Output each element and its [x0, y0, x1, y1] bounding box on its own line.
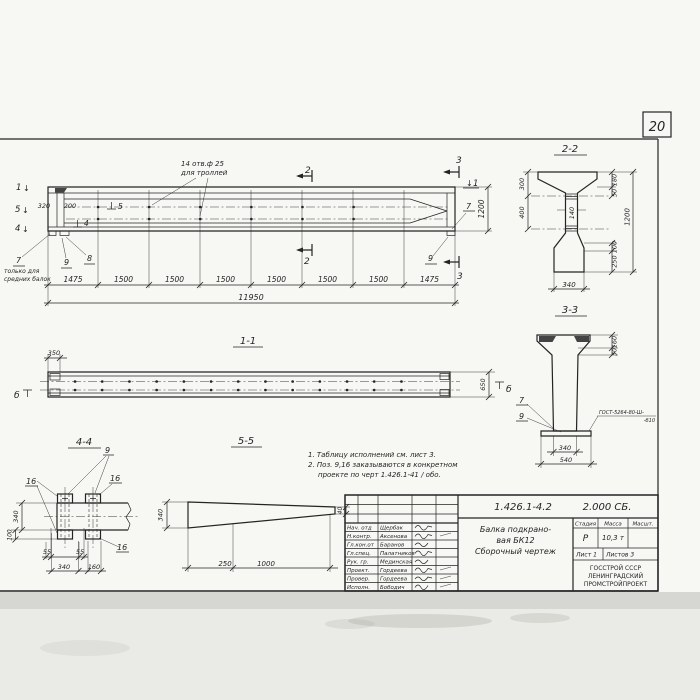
header-stage: Стадия	[575, 522, 597, 528]
dim-340: 340	[157, 509, 165, 521]
stamp-role: Исполн.	[347, 585, 370, 591]
view-mark-4: 4	[15, 224, 20, 234]
mass-value: 10,3 т	[602, 534, 625, 542]
stamp-role: Гл.спец.	[347, 551, 371, 557]
callout-16: 16	[110, 474, 120, 483]
dim-40: 40	[337, 507, 344, 515]
sheet-label: Лист 1	[575, 552, 597, 559]
drawing-sheet: 20	[0, 0, 700, 700]
view-mark-1-right: 1	[473, 179, 478, 189]
doc-suffix: 2.000 СБ.	[583, 502, 632, 513]
sheet-frame	[0, 112, 671, 591]
dim-100: 100	[611, 241, 619, 253]
dim-540: 540	[560, 456, 572, 464]
doc-number: 1.426.1-4.2	[494, 502, 552, 513]
view-arrow-icon: ↓	[22, 225, 29, 234]
callout-16: 16	[26, 477, 36, 486]
section-2-2-title: 2-2	[562, 144, 578, 155]
stamp-role: Н.контр.	[347, 534, 372, 540]
dim-seg: 1500	[267, 275, 286, 284]
stamp-role: Рук. гр.	[347, 560, 369, 566]
section-2-2-view	[523, 155, 637, 292]
section-3-3-view	[516, 316, 656, 468]
cut-label-2: 2	[305, 166, 311, 176]
dim-340: 340	[559, 444, 571, 452]
section-3-3-title: 3-3	[562, 305, 578, 316]
section-4-4-title: 4-4	[76, 437, 92, 448]
pos-mark-4: 4	[84, 219, 89, 228]
note-line-3: проекте по черт 1.426.1-41 / обо.	[318, 471, 441, 479]
hole-note-line2: для троллей	[180, 169, 228, 177]
dim-seg: 1500	[114, 275, 133, 284]
dim-340-v: 340	[12, 510, 20, 522]
stamp-name: Палатников	[380, 551, 415, 557]
dim-seg: 1500	[369, 275, 388, 284]
callout-16: 16	[117, 543, 127, 552]
dim-340-h: 340	[58, 563, 70, 571]
dim-140: 140	[568, 207, 576, 219]
note-middle-beams-1: только для	[4, 268, 40, 275]
drawing-title-line1: Балка подкрано-	[480, 525, 551, 534]
weld-note-line1: ГОСТ-5264-80-Ш-	[599, 410, 644, 416]
stamp-name: Аксенова	[379, 534, 408, 540]
hole-note-line1: 14 отв.ф 25	[181, 160, 225, 168]
org-line2: ЛЕНИНГРАДСКИЙ	[588, 573, 643, 580]
dim-400: 400	[518, 206, 526, 218]
dim-seg: 1500	[216, 275, 235, 284]
dim-55: 55	[76, 548, 84, 556]
stamp-name: Гордеева	[380, 568, 408, 574]
org-line1: ГОССТРОЙ СССР	[590, 565, 642, 572]
header-mass: Масса	[604, 522, 622, 528]
page-number: 20	[649, 120, 666, 135]
drawing-title-line2: вая БК12	[496, 536, 534, 545]
cut-label-3: 3	[456, 156, 462, 166]
stamp-name: Мединская	[380, 560, 413, 566]
dim-650: 650	[479, 378, 487, 390]
dim-55: 55	[43, 548, 51, 556]
callout-7: 7	[519, 396, 525, 405]
view-mark-5: 5	[15, 205, 20, 215]
note-line-1: 1. Таблицу исполнений см. лист 3.	[308, 451, 436, 459]
dim-seg: 1500	[318, 275, 337, 284]
org-line3: ПРОМСТРОЙПРОЕКТ	[584, 581, 648, 588]
callout-9: 9	[519, 412, 524, 421]
stage-value: Р	[583, 534, 589, 544]
dim-350: 350	[48, 349, 60, 357]
stamp-name: Щербак	[380, 526, 404, 532]
stamp-role: Провер.	[347, 577, 370, 583]
dim-1200: 1200	[624, 208, 632, 226]
note-middle-beams-2: средних балок	[4, 276, 51, 283]
callout-7: 7	[16, 256, 22, 265]
dim-200: 200	[64, 202, 76, 210]
section-1-1-title: 1-1	[240, 336, 256, 347]
dim-seg: 1500	[165, 275, 184, 284]
dim-160: 160	[88, 563, 100, 571]
stamp-role: Нач. отд	[347, 526, 372, 532]
scan-shadow	[0, 592, 700, 700]
view-mark-1: 1	[16, 183, 21, 193]
pos-mark-5: 5	[118, 202, 123, 211]
dim-50: 50	[611, 189, 619, 197]
stamp-name: Баранов	[380, 543, 404, 549]
cut-mark-b-left: б	[14, 391, 20, 401]
callout-8: 8	[87, 254, 92, 263]
signature-marks	[415, 526, 451, 590]
view-arrow-icon: ↓	[23, 184, 30, 193]
section-5-5-title: 5-5	[238, 436, 254, 447]
dim-1000: 1000	[257, 560, 275, 568]
dim-160: 160	[611, 336, 619, 348]
dim-180: 180	[611, 174, 619, 186]
weld-note-line2: -б10	[644, 418, 655, 424]
dim-100: 100	[7, 529, 14, 541]
view-arrow-icon: ↓	[22, 206, 29, 215]
header-scale: Масшт.	[632, 522, 653, 528]
dim-seg: 1475	[420, 275, 439, 284]
dim-340: 340	[562, 281, 576, 289]
dim-30: 30	[612, 348, 619, 356]
callout-7-right: 7	[466, 202, 472, 211]
dim-height-1200: 1200	[477, 199, 486, 218]
dim-total: 11950	[238, 293, 263, 302]
sheets-label: Листов 3	[605, 552, 634, 559]
dim-300: 300	[518, 178, 526, 190]
cut-label-2: 2	[304, 257, 310, 267]
stamp-role: Проект.	[347, 568, 370, 574]
stamp-name: Бободич	[380, 585, 405, 591]
section-1-1-view	[23, 347, 504, 400]
drawing-title-line3: Сборочный чертеж	[475, 547, 557, 556]
main-elevation-view	[13, 166, 492, 306]
stamp-role: Гл.кон.от	[347, 543, 375, 549]
view-arrow-icon: ↓	[466, 179, 473, 188]
callout-9-right: 9	[428, 254, 433, 263]
callout-9: 9	[64, 258, 69, 267]
dim-320: 320	[38, 202, 50, 210]
cut-label-3: 3	[457, 272, 463, 282]
general-notes: 1. Таблицу исполнений см. лист 3. 2. Поз…	[308, 451, 458, 479]
dim-seg: 1475	[63, 275, 82, 284]
cut-mark-b-right: б	[506, 385, 512, 395]
dim-250: 250	[218, 560, 232, 568]
note-line-2: 2. Поз. 9,16 заказываются в конкретном	[308, 461, 458, 469]
callout-9: 9	[105, 446, 110, 455]
dim-250: 250	[611, 255, 619, 267]
stamp-name: Гордеева	[380, 577, 408, 583]
